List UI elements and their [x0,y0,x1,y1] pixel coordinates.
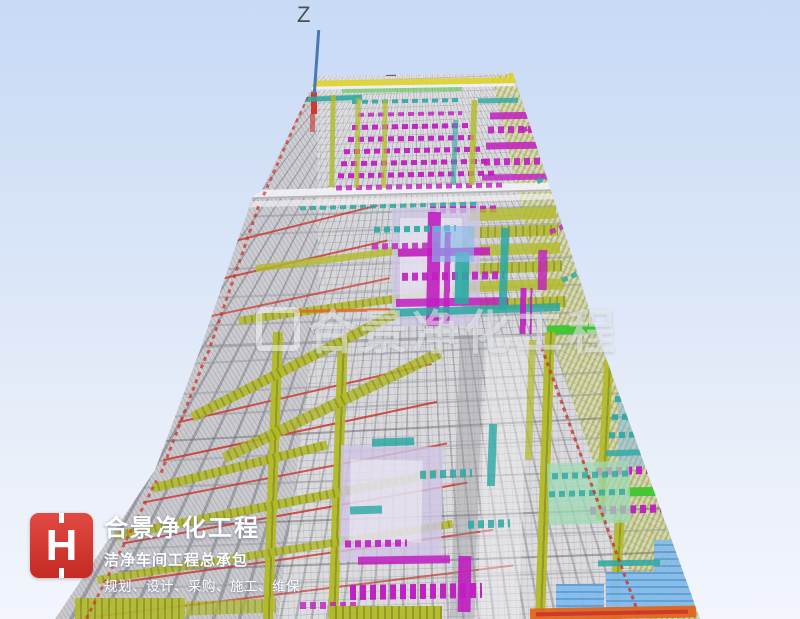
logo-slit-top [59,513,64,523]
company-tagline: 规划、设计、采购、施工、维保 [104,575,300,595]
model-shape [341,159,489,167]
model-shape [458,556,472,612]
model-shape [349,459,422,542]
logo-text-column: 合景净化工程 洁净车间工程总承包 规划、设计、采购、施工、维保 [104,508,300,595]
model-shape [477,334,529,619]
logo-slit-bottom [59,568,64,578]
model-shape [358,111,462,117]
model-shape [372,437,414,446]
model-shape [344,147,482,154]
model-shape [372,242,438,249]
model-shape [538,250,548,290]
logo-monogram: H [46,524,78,568]
model-viewport-screenshot: Z 合景净化工程 H 合景净化工程 洁净车间工程总承包 规划、设计、采购、施工、… [0,0,800,619]
company-subtitle: 洁净车间工程总承包 [104,549,300,570]
model-shape [330,606,442,619]
model-shape [345,539,407,547]
model-shape [342,87,462,93]
model-shape [295,308,390,313]
model-shape [350,505,382,514]
company-name: 合景净化工程 [104,508,300,543]
model-shape [468,224,558,238]
model-shape [478,98,518,104]
model-shape [468,519,510,528]
model-shape [310,114,315,132]
model-shape [520,288,533,334]
model-shape [402,271,504,281]
model-shape [358,555,450,565]
model-shape [598,559,660,566]
company-logo-mark: H [30,513,93,578]
company-logo-block: H 合景净化工程 洁净车间工程总承包 规划、设计、采购、施工、维保 [30,508,300,595]
z-axis-label: Z [297,2,310,28]
model-shape [329,95,336,187]
model-shape [352,98,462,104]
model-shape [470,207,556,222]
model-shape [432,226,474,262]
model-shape [311,92,317,114]
